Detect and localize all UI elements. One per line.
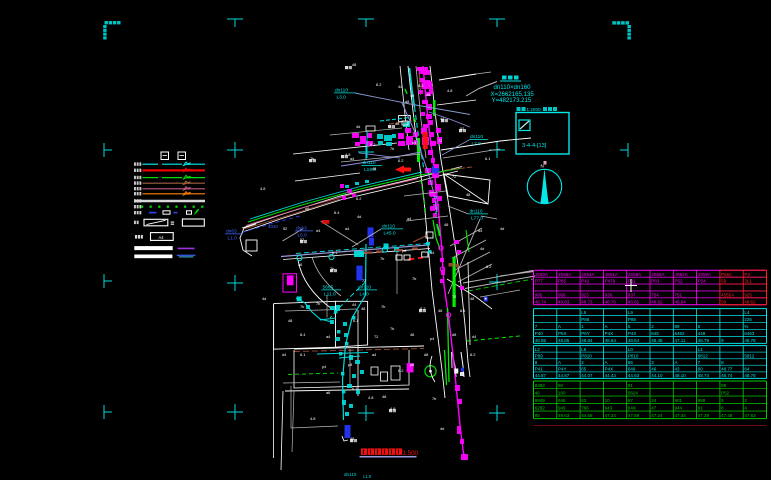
svg-text:P52: P52 xyxy=(675,279,684,284)
svg-text:P86: P86 xyxy=(581,317,590,322)
svg-text:4555A: 4555A xyxy=(721,292,734,297)
svg-text:6.2: 6.2 xyxy=(398,158,403,163)
svg-text:946: 946 xyxy=(558,398,566,403)
svg-text:46: 46 xyxy=(651,367,657,372)
svg-text:89: 89 xyxy=(721,383,727,388)
svg-text:5624: 5624 xyxy=(628,391,639,396)
svg-text:7b: 7b xyxy=(380,256,384,261)
svg-text:4d: 4d xyxy=(440,426,444,431)
svg-text:72: 72 xyxy=(362,278,366,283)
svg-text:64X: 64X xyxy=(628,406,636,411)
svg-text:48.74: 48.74 xyxy=(721,373,733,378)
svg-text:P810: P810 xyxy=(581,353,592,358)
svg-text:85: 85 xyxy=(535,413,541,418)
svg-text:4d: 4d xyxy=(480,246,484,251)
svg-text:47: 47 xyxy=(651,406,657,411)
svg-text:6.2: 6.2 xyxy=(356,196,361,201)
svg-text:48: 48 xyxy=(352,62,356,67)
svg-text:8.4: 8.4 xyxy=(460,308,466,313)
svg-text:72: 72 xyxy=(452,294,456,299)
svg-text:86: 86 xyxy=(628,360,634,365)
svg-text:L1.0: L1.0 xyxy=(363,474,372,479)
svg-text:48.82: 48.82 xyxy=(651,299,663,304)
svg-text:766: 766 xyxy=(581,406,589,411)
svg-text:4d: 4d xyxy=(262,296,266,301)
svg-text:P562: P562 xyxy=(721,272,732,277)
svg-text:52: 52 xyxy=(283,226,287,231)
svg-text:91: 91 xyxy=(698,406,704,411)
svg-text:P479: P479 xyxy=(605,279,616,284)
svg-text:87: 87 xyxy=(628,398,634,403)
svg-text:65: 65 xyxy=(581,367,587,372)
svg-text:44.43: 44.43 xyxy=(605,373,617,378)
svg-text:48.74: 48.74 xyxy=(698,373,710,378)
svg-text:48.10: 48.10 xyxy=(675,373,687,378)
svg-text:48: 48 xyxy=(466,192,470,197)
svg-text:59: 59 xyxy=(721,279,727,284)
svg-text:%: % xyxy=(744,324,748,329)
svg-text:A4: A4 xyxy=(159,235,165,240)
svg-text:3-4-4-[13]: 3-4-4-[13] xyxy=(522,143,547,149)
svg-text:7b: 7b xyxy=(432,396,436,401)
svg-text:8.2: 8.2 xyxy=(376,82,381,87)
svg-text:L6: L6 xyxy=(581,347,587,352)
svg-text:44.87: 44.87 xyxy=(535,373,547,378)
svg-text:7b: 7b xyxy=(316,301,320,306)
svg-text:7b: 7b xyxy=(390,146,394,151)
svg-text:6.2: 6.2 xyxy=(486,264,491,269)
svg-text:8.4: 8.4 xyxy=(334,210,340,215)
svg-text:48.84: 48.84 xyxy=(675,299,687,304)
svg-text:937: 937 xyxy=(628,292,636,297)
svg-text:P5X: P5X xyxy=(558,331,567,336)
svg-text:JS50A: JS50A xyxy=(535,272,548,277)
svg-text:L3.0: L3.0 xyxy=(337,95,347,101)
svg-text:JS59A: JS59A xyxy=(698,272,711,277)
svg-text:47.48: 47.48 xyxy=(721,413,733,418)
svg-text:P41: P41 xyxy=(535,367,544,372)
svg-text:P89: P89 xyxy=(535,353,544,358)
svg-text:L1: L1 xyxy=(698,347,704,352)
svg-text:930: 930 xyxy=(605,292,613,297)
svg-text:6282: 6282 xyxy=(535,406,546,411)
svg-text:P88: P88 xyxy=(628,317,637,322)
svg-text:58: 58 xyxy=(721,299,727,304)
svg-text:8.2: 8.2 xyxy=(470,352,475,357)
svg-text:72: 72 xyxy=(374,334,378,339)
svg-text:7b: 7b xyxy=(412,276,416,281)
svg-text:L1.0: L1.0 xyxy=(228,236,238,242)
svg-text:80: 80 xyxy=(698,367,704,372)
svg-text:L5: L5 xyxy=(581,310,587,315)
svg-text:JS55A: JS55A xyxy=(651,272,664,277)
svg-text:649: 649 xyxy=(628,367,636,372)
svg-text:4d: 4d xyxy=(410,93,414,98)
svg-text:48.77: 48.77 xyxy=(721,367,733,372)
svg-text:48.74: 48.74 xyxy=(535,299,547,304)
svg-text:48.85: 48.85 xyxy=(558,338,570,343)
svg-text:8.2: 8.2 xyxy=(398,368,403,373)
svg-text:8.2: 8.2 xyxy=(418,83,423,88)
svg-text:48.64: 48.64 xyxy=(605,338,617,343)
svg-text:4d: 4d xyxy=(356,124,360,129)
svg-text:44.63: 44.63 xyxy=(628,373,640,378)
svg-text:A: A xyxy=(558,360,561,365)
svg-text:48: 48 xyxy=(410,332,414,337)
svg-text:JS56A: JS56A xyxy=(558,272,571,277)
svg-text:P77: P77 xyxy=(535,279,544,284)
svg-text:p8: p8 xyxy=(410,362,414,367)
svg-text:47.29: 47.29 xyxy=(698,413,710,418)
svg-text:L4: L4 xyxy=(744,310,750,315)
svg-text:988: 988 xyxy=(698,398,706,403)
svg-text:6463: 6463 xyxy=(744,331,755,336)
svg-text:P40: P40 xyxy=(535,331,544,336)
svg-text:4.8: 4.8 xyxy=(447,88,452,93)
svg-text:dn110: dn110 xyxy=(344,472,357,477)
svg-text:L9: L9 xyxy=(628,310,634,315)
svg-text:L4.0: L4.0 xyxy=(360,292,370,298)
svg-text:8383: 8383 xyxy=(535,383,546,388)
svg-text:64: 64 xyxy=(744,367,750,372)
svg-text:901: 901 xyxy=(675,398,683,403)
svg-text:L2: L2 xyxy=(535,347,541,352)
svg-text:P6Y: P6Y xyxy=(581,331,590,336)
svg-text:4010: 4010 xyxy=(268,224,278,229)
svg-text:JS51A: JS51A xyxy=(605,272,618,277)
svg-text:4.8: 4.8 xyxy=(368,395,373,400)
svg-text:48.64: 48.64 xyxy=(628,338,640,343)
svg-text:d8: d8 xyxy=(424,352,428,357)
svg-text:754: 754 xyxy=(651,292,659,297)
svg-text:48.78: 48.78 xyxy=(744,373,756,378)
svg-text:43: 43 xyxy=(675,367,681,372)
svg-text:P85: P85 xyxy=(558,279,567,284)
svg-text:48: 48 xyxy=(470,296,474,301)
svg-text:46: 46 xyxy=(535,391,541,396)
svg-text:48: 48 xyxy=(361,306,365,311)
svg-text:L0: L0 xyxy=(628,347,634,352)
svg-text:968: 968 xyxy=(558,292,566,297)
svg-text:d8: d8 xyxy=(395,121,399,126)
svg-text:P4X: P4X xyxy=(605,367,614,372)
svg-text:a6: a6 xyxy=(298,262,302,267)
svg-text:48: 48 xyxy=(372,166,376,171)
svg-text:p8: p8 xyxy=(402,248,406,253)
svg-text:44.07: 44.07 xyxy=(581,373,593,378)
svg-text:6.1: 6.1 xyxy=(300,352,305,357)
svg-text:90: 90 xyxy=(558,383,564,388)
svg-text:48.76: 48.76 xyxy=(605,299,617,304)
svg-text:48.62: 48.62 xyxy=(744,299,756,304)
svg-text:p8: p8 xyxy=(348,362,352,367)
svg-text:1:2000: 1:2000 xyxy=(527,107,541,112)
svg-text:1:500: 1:500 xyxy=(403,450,419,457)
svg-text:63: 63 xyxy=(581,398,587,403)
svg-text:48.79: 48.79 xyxy=(698,338,710,343)
svg-text:47.24: 47.24 xyxy=(605,413,617,418)
svg-text:N: N xyxy=(541,164,544,169)
svg-text:L77.0: L77.0 xyxy=(471,216,483,222)
svg-text:91: 91 xyxy=(628,383,634,388)
svg-text:6462: 6462 xyxy=(675,331,686,336)
svg-text:L11.0: L11.0 xyxy=(324,292,336,298)
svg-text:A: A xyxy=(605,360,608,365)
svg-text:48.86: 48.86 xyxy=(535,338,547,343)
svg-text:JS54A: JS54A xyxy=(581,272,594,277)
svg-text:944: 944 xyxy=(675,406,683,411)
svg-text:48: 48 xyxy=(438,308,442,313)
svg-text:72: 72 xyxy=(438,138,442,143)
svg-text:34: 34 xyxy=(651,398,657,403)
svg-text:449: 449 xyxy=(698,331,706,336)
svg-text:48.78: 48.78 xyxy=(744,338,756,343)
svg-text:48.83: 48.83 xyxy=(558,299,570,304)
svg-text:6.1: 6.1 xyxy=(485,156,490,161)
svg-text:44.10: 44.10 xyxy=(651,373,663,378)
svg-text:48: 48 xyxy=(288,318,292,323)
svg-text:P4Y: P4Y xyxy=(558,367,567,372)
svg-text:5812: 5812 xyxy=(744,353,755,358)
svg-text:P24: P24 xyxy=(698,279,707,284)
svg-text:48: 48 xyxy=(444,222,448,227)
svg-text:8.2: 8.2 xyxy=(370,142,375,147)
svg-text:P11: P11 xyxy=(628,279,636,284)
svg-text:A: A xyxy=(558,324,561,329)
svg-text:P52: P52 xyxy=(721,391,730,396)
svg-text:d8: d8 xyxy=(452,332,456,337)
svg-text:Y=482173.215: Y=482173.215 xyxy=(492,97,532,104)
svg-text:d8: d8 xyxy=(305,206,309,211)
svg-text:943: 943 xyxy=(605,406,613,411)
svg-text:4d: 4d xyxy=(357,214,361,219)
svg-text:47.34: 47.34 xyxy=(675,413,687,418)
svg-text:6.1: 6.1 xyxy=(353,318,358,323)
svg-text:A: A xyxy=(675,360,678,365)
svg-text:10: 10 xyxy=(605,398,611,403)
svg-text:48: 48 xyxy=(426,92,430,97)
svg-text:8812: 8812 xyxy=(698,353,709,358)
svg-text:JS58A: JS58A xyxy=(628,272,641,277)
svg-text:JS52A: JS52A xyxy=(675,272,688,277)
svg-text:4.8: 4.8 xyxy=(260,186,265,191)
svg-text:49.63: 49.63 xyxy=(558,413,570,418)
svg-text:100: 100 xyxy=(558,391,566,396)
svg-text:72: 72 xyxy=(452,174,456,179)
svg-text:48.48: 48.48 xyxy=(651,338,663,343)
svg-text:8.4: 8.4 xyxy=(300,332,306,337)
svg-text:P83: P83 xyxy=(651,279,660,284)
svg-text:47.63: 47.63 xyxy=(744,413,756,418)
svg-text:7b: 7b xyxy=(300,304,304,309)
svg-text:a6: a6 xyxy=(326,390,330,395)
svg-text:P42: P42 xyxy=(581,279,590,284)
svg-text:751: 751 xyxy=(675,292,683,297)
svg-text:P810: P810 xyxy=(628,353,639,358)
svg-text:P4X: P4X xyxy=(628,331,637,336)
svg-text:48.81: 48.81 xyxy=(628,299,640,304)
svg-text:3L1: 3L1 xyxy=(744,279,752,284)
svg-text:6.1: 6.1 xyxy=(332,250,337,255)
svg-text:226: 226 xyxy=(744,317,752,322)
svg-text:A: A xyxy=(605,324,608,329)
svg-text:L45.0: L45.0 xyxy=(384,231,396,237)
svg-text:47.59: 47.59 xyxy=(628,413,640,418)
svg-text:4.8: 4.8 xyxy=(310,416,315,421)
svg-text:47.24: 47.24 xyxy=(651,413,663,418)
svg-text:47.11: 47.11 xyxy=(675,338,686,343)
svg-text:925: 925 xyxy=(744,292,752,297)
svg-text:44.68: 44.68 xyxy=(581,413,593,418)
svg-text:P4X: P4X xyxy=(605,331,614,336)
svg-text:7b: 7b xyxy=(381,304,385,309)
svg-text:6.1: 6.1 xyxy=(352,386,357,391)
svg-text:845: 845 xyxy=(651,331,659,336)
svg-text:923: 923 xyxy=(581,292,589,297)
svg-text:L7.0: L7.0 xyxy=(472,141,482,147)
svg-text:7b: 7b xyxy=(390,326,394,331)
svg-text:4d: 4d xyxy=(500,226,504,231)
svg-text:P3: P3 xyxy=(744,272,750,277)
svg-text:d8: d8 xyxy=(405,99,409,104)
svg-text:44.87: 44.87 xyxy=(558,373,570,378)
svg-text:48.73: 48.73 xyxy=(581,299,593,304)
svg-text:48.84: 48.84 xyxy=(581,338,593,343)
svg-text:9949: 9949 xyxy=(535,398,546,403)
svg-text:48: 48 xyxy=(382,394,386,399)
svg-text:89: 89 xyxy=(675,324,681,329)
svg-text:949: 949 xyxy=(558,406,566,411)
svg-text:995: 995 xyxy=(535,292,543,297)
